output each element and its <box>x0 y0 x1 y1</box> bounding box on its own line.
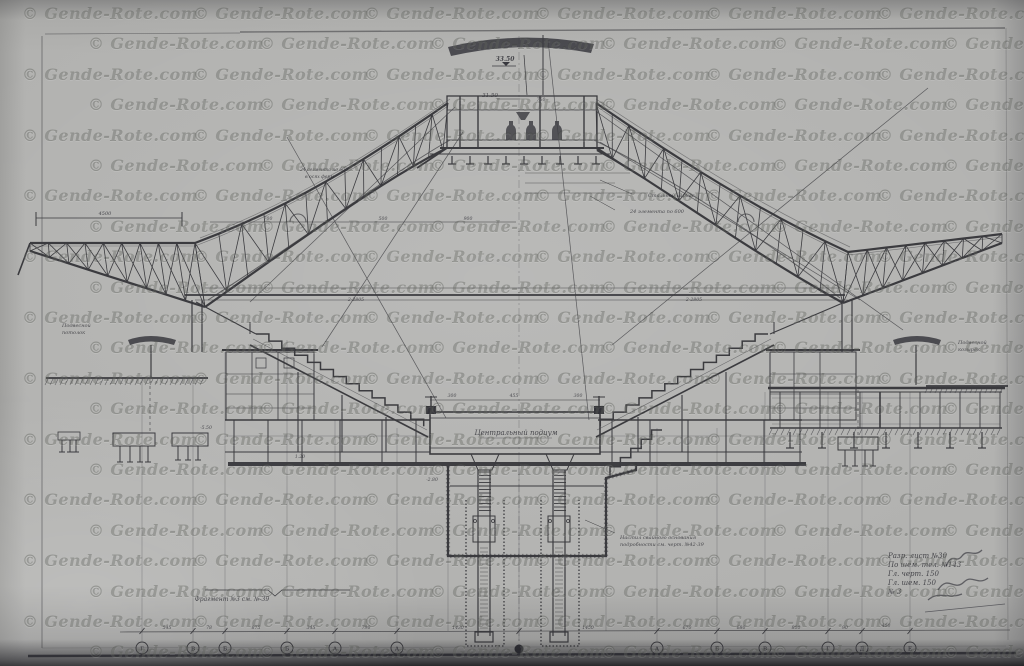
right-canopy-icon <box>893 336 941 345</box>
dimension-text: -2.80 <box>426 477 438 483</box>
axis-letter: Е <box>908 647 912 653</box>
left-ceiling-label-2: потолок <box>62 330 85 336</box>
detail-note-2: подробности см. черт. №42-39 <box>620 541 705 548</box>
right-canopy-label-1: Подвесной <box>957 340 987 346</box>
axis-letter: Б <box>223 647 227 653</box>
vent-bottle-icon <box>526 121 536 140</box>
dimension-text: 400 <box>881 623 891 629</box>
dimension-text: 78 <box>206 625 212 631</box>
labels: Центральный подиум Фрагмент №3 см. №-39 … <box>61 56 987 603</box>
handwritten-notes: Разр. лист №30По шем. тел. №143Гл. черт.… <box>888 552 1014 597</box>
handwritten-line: Гл. черт. 150 <box>888 570 1014 579</box>
dim-left-cantilever: 4500 <box>98 211 113 217</box>
elevation-lantern: 31.50 <box>482 93 498 99</box>
roof-note-1: Стальной каркас <box>648 193 695 199</box>
dimension-text: 2-2805 <box>685 297 702 303</box>
roof-inner-arcs <box>200 99 850 300</box>
dimension-text: 700 <box>264 216 273 222</box>
axis-letter: Г <box>140 647 144 653</box>
lantern-canopy <box>448 38 594 56</box>
axis-letter: Г <box>826 647 830 653</box>
dimensions <box>36 36 1010 652</box>
dimension-text: 300 <box>448 393 457 399</box>
dimension-text: 2-2805 <box>347 297 364 303</box>
roof-lantern <box>417 35 627 168</box>
dimension-text: 1450 <box>582 625 594 631</box>
left-tip-post <box>18 243 30 275</box>
roof-note-2: 24 элемента по 600 <box>629 209 685 215</box>
dimension-text: 455 <box>509 393 519 399</box>
axis-letter: В <box>191 647 195 653</box>
dimension-text: 800 <box>792 625 801 631</box>
axis-letter: Б <box>285 647 289 653</box>
grandstand-left <box>250 322 428 452</box>
stadium-section-drawing: ГВББАААБВГДЕ Центральный подиум Фрагмент… <box>0 0 1024 666</box>
dimension-text: 1430 <box>452 625 464 631</box>
ground <box>45 378 1008 466</box>
dimension-text: 345 <box>307 625 316 631</box>
dimension-text: 875 <box>252 625 261 631</box>
right-gallery <box>768 388 1005 448</box>
elevation-top: 33.50 <box>496 56 516 63</box>
dimension-text: 680 <box>737 625 746 631</box>
left-canopy-icon <box>128 336 176 345</box>
handwritten-line: По шем. тел. №143 <box>888 561 1014 570</box>
dimension-text: -5.50 <box>200 425 212 431</box>
axis-letter: В <box>763 647 767 653</box>
left-ceiling-label-1: Подвесной <box>61 323 91 329</box>
truss-note-2: в осях ферм <box>305 173 334 180</box>
truss-note-1: 24 сегмента по 600 <box>299 167 348 173</box>
right-canopy-label-2: козырёк <box>958 346 980 353</box>
annotation-numbers: 7507005009003004553002-28052-2805-5.50-2… <box>163 97 891 631</box>
funnel-icon <box>516 112 530 120</box>
axis-letter: А <box>655 647 660 653</box>
axis-letter: Б <box>715 647 719 653</box>
dimension-text: 300 <box>574 393 583 399</box>
vent-bottle-icon <box>506 121 516 140</box>
central-podium-label: Центральный подиум <box>475 429 558 437</box>
cables <box>250 40 928 420</box>
lantern-pedestals <box>448 156 600 164</box>
dimension-text: 900 <box>464 216 473 222</box>
axis-letter: Д <box>860 647 865 653</box>
handwritten-line: Разр. лист №30 <box>888 552 1014 561</box>
tie-lines <box>185 288 848 300</box>
handwritten-line: Гл. шем. 150 <box>888 579 1014 588</box>
dimension-text: 90 <box>842 625 848 631</box>
dimension-text: 545 <box>163 625 172 631</box>
fragment-note: Фрагмент №3 см. №-39 <box>195 596 270 603</box>
detail-note-1: Настил свайного основания <box>619 535 696 541</box>
dimension-text: 500 <box>379 216 388 222</box>
dimension-text: 670 <box>683 625 692 631</box>
dimension-text: 750 <box>537 97 546 103</box>
handwritten-line: № 3 <box>888 588 1014 597</box>
dimension-text: 790 <box>362 625 371 631</box>
archival-photo-of-blueprint: ГВББАААБВГДЕ Центральный подиум Фрагмент… <box>0 0 1024 666</box>
dimension-text: 1.20 <box>295 454 305 460</box>
grandstand-right <box>596 322 774 452</box>
film-edge-line <box>28 653 1016 656</box>
